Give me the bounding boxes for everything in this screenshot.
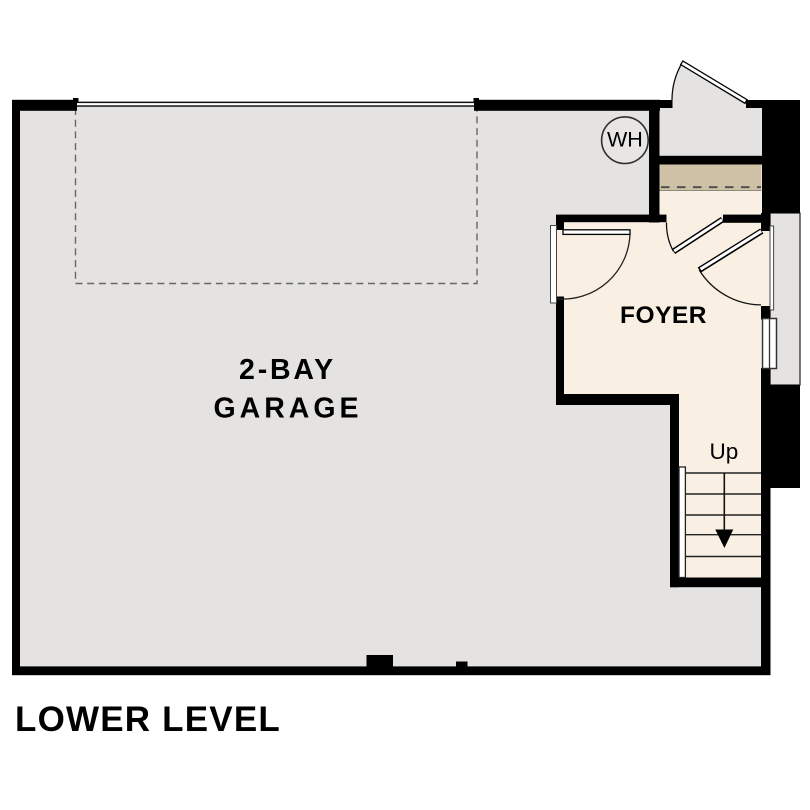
svg-text:Up: Up — [710, 439, 739, 464]
svg-text:FOYER: FOYER — [620, 302, 707, 329]
svg-text:WH: WH — [607, 128, 643, 152]
svg-text:2-BAY: 2-BAY — [239, 354, 336, 386]
svg-text:LOWER LEVEL: LOWER LEVEL — [15, 700, 281, 739]
svg-text:GARAGE: GARAGE — [213, 393, 362, 425]
